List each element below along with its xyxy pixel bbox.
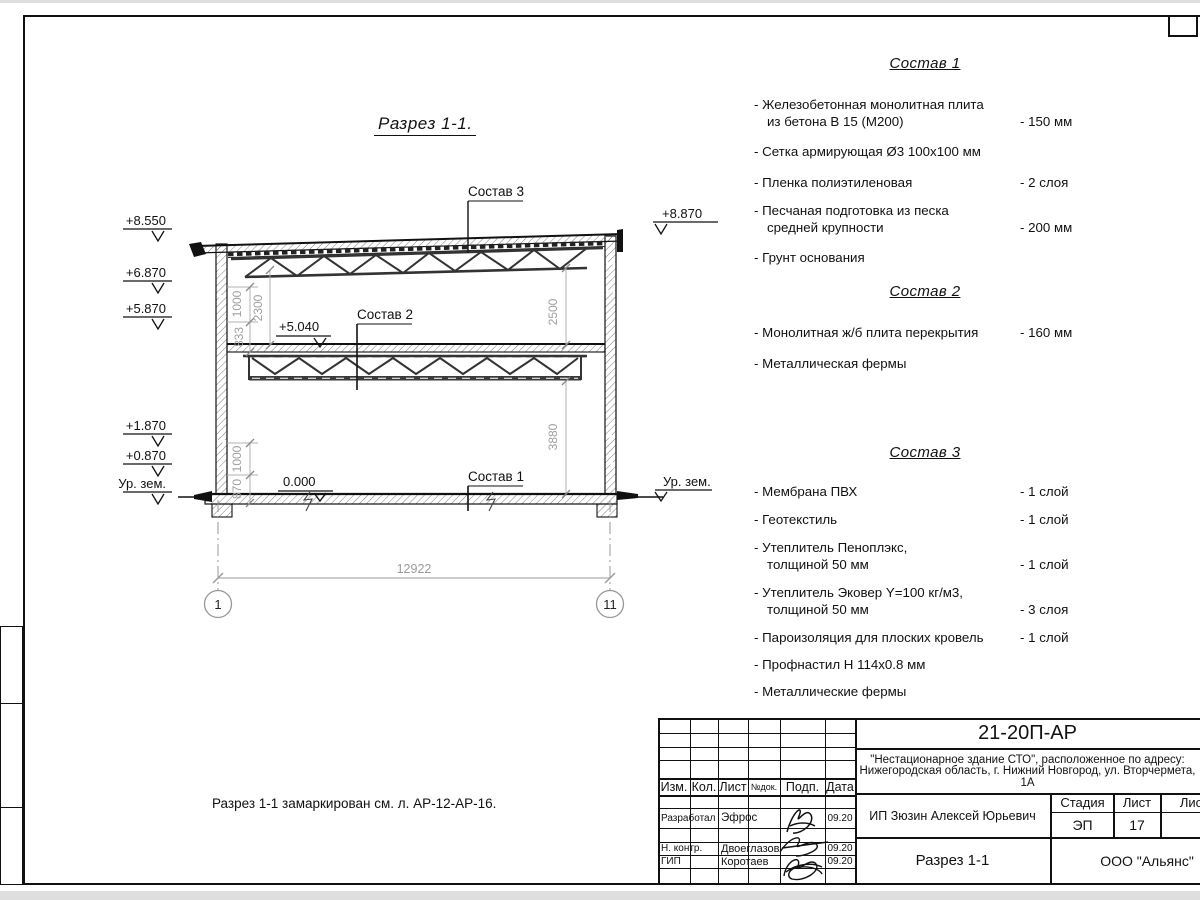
walls	[216, 236, 616, 494]
floor-slab	[194, 491, 638, 517]
list-item: - Профнастил Н 114х0.8 мм	[754, 656, 1096, 673]
svg-text:+0.870: +0.870	[126, 448, 166, 463]
svg-text:Ур. зем.: Ур. зем.	[663, 474, 711, 489]
row-role-ncontrol: Н. контр.	[661, 842, 718, 855]
list-item: - Железобетонная монолитная плита из бет…	[754, 96, 1096, 130]
level-ground-left: Ур. зем.	[118, 476, 172, 504]
axis-1: 1	[214, 597, 221, 612]
dim-2300: 2300	[251, 294, 265, 321]
row-name-gip: Коротаев	[721, 855, 781, 868]
stage-label: Стадия	[1052, 794, 1113, 811]
level-8550: +8.550	[123, 213, 172, 241]
client-name: ИП Зюзин Алексей Юрьевич	[855, 795, 1050, 836]
svg-text:Ур. зем.: Ур. зем.	[118, 476, 166, 491]
svg-text:0.000: 0.000	[283, 474, 316, 489]
row-date-developer: 09.20	[825, 810, 855, 826]
signature-developer	[784, 802, 824, 838]
row-name-developer: Эфрос	[721, 809, 779, 827]
composition-3-title: Состав 3	[754, 444, 1096, 461]
level-ground-right: Ур. зем.	[655, 474, 712, 501]
svg-text:Состав 1: Состав 1	[468, 469, 524, 484]
col-list: Лист	[718, 779, 748, 795]
dim-3880: 3880	[546, 423, 560, 450]
label-sostav1: Состав 1	[468, 469, 524, 511]
svg-text:Состав 2: Состав 2	[357, 307, 413, 322]
dim-1000-upper: 1000	[230, 290, 244, 317]
list-item: - Металлическая фермы	[754, 355, 1096, 372]
list-item: - Мембрана ПВХ - 1 слой	[754, 483, 1096, 500]
level-0870: +0.870	[123, 448, 172, 476]
axes: 12922 1 11	[205, 500, 624, 618]
dim-1000-lower: 1000	[230, 445, 244, 472]
dim-12922: 12922	[397, 562, 432, 576]
composition-1-title: Состав 1	[754, 55, 1096, 72]
title-block: Изм. Кол. Лист №док. Подп. Дата Разработ…	[658, 718, 1200, 885]
wall-right	[605, 236, 616, 494]
composition-2: Состав 2 - Монолитная ж/б плита перекрыт…	[754, 283, 1096, 385]
svg-text:+8.550: +8.550	[126, 213, 166, 228]
col-ndok: №док.	[748, 779, 780, 795]
note-text: Разрез 1-1 замаркирован см. л. АР-12-АР-…	[212, 796, 496, 811]
list-item: - Монолитная ж/б плита перекрытия - 160 …	[754, 324, 1096, 341]
dim-2500: 2500	[546, 298, 560, 325]
list-item: - Металлические фермы	[754, 683, 1096, 700]
sheet-title: Разрез 1-1	[855, 839, 1050, 882]
list-item: - Песчаная подготовка из песка средней к…	[754, 202, 1096, 236]
level-5040: +5.040	[276, 319, 331, 347]
sheet-label: Лист	[1114, 794, 1160, 811]
svg-text:+1.870: +1.870	[126, 418, 166, 433]
col-data: Дата	[825, 779, 855, 795]
list-item: - Утеплитель Пеноплэкс, толщиной 50 мм -…	[754, 539, 1096, 573]
level-1870: +1.870	[123, 418, 172, 446]
list-item: - Утеплитель Эковер Y=100 кг/м3, толщино…	[754, 584, 1096, 618]
list-item: - Грунт основания	[754, 249, 1096, 266]
dim-833: 833	[232, 327, 246, 347]
screenshot-root: { "drawing": { "title": "Разрез 1-1.", "…	[0, 0, 1200, 900]
axis-11: 11	[603, 597, 617, 612]
company-name: ООО "Альянс"	[1052, 839, 1200, 882]
mid-floor	[227, 344, 605, 381]
sheets-label: Листов	[1161, 794, 1200, 811]
sheet-number: 17	[1114, 813, 1160, 836]
svg-text:Состав 3: Состав 3	[468, 184, 524, 199]
row-name-ncontrol: Двоеглазов	[721, 842, 781, 855]
wall-left	[216, 244, 227, 494]
svg-text:+6.870: +6.870	[126, 265, 166, 280]
foundation-right	[597, 504, 617, 517]
composition-3: Состав 3 - Мембрана ПВХ - 1 слой - Геоте…	[754, 444, 1096, 713]
composition-2-title: Состав 2	[754, 283, 1096, 300]
project-line2: Нижегородская область, г. Нижний Новгоро…	[855, 768, 1200, 786]
row-role-gip: ГИП	[661, 855, 718, 868]
svg-text:+5.870: +5.870	[126, 301, 166, 316]
signature-ncontrol-gip	[776, 834, 834, 884]
level-8870: +8.870	[653, 206, 718, 234]
list-item: - Геотекстиль - 1 слой	[754, 511, 1096, 528]
svg-text:+8.870: +8.870	[662, 206, 702, 221]
level-5870: +5.870	[123, 301, 172, 329]
dim-870: 870	[230, 479, 244, 499]
stage-value: ЭП	[1052, 813, 1113, 836]
col-kol: Кол.	[690, 779, 718, 795]
level-6870: +6.870	[123, 265, 172, 293]
list-item: - Сетка армирующая Ø3 100х100 мм	[754, 143, 1096, 160]
col-podp: Подп.	[780, 779, 825, 795]
list-item: - Пароизоляция для плоских кровель - 1 с…	[754, 629, 1096, 646]
drawing-title: Разрез 1-1.	[374, 114, 476, 136]
doc-code: 21-20П-АР	[855, 720, 1200, 747]
svg-text:+5.040: +5.040	[279, 319, 319, 334]
composition-1: Состав 1 - Железобетонная монолитная пли…	[754, 55, 1096, 279]
col-izm: Изм.	[658, 779, 690, 795]
row-role-developer: Разработал	[661, 809, 718, 827]
list-item: - Пленка полиэтиленовая - 2 слоя	[754, 174, 1096, 191]
foundation-left	[212, 504, 232, 517]
